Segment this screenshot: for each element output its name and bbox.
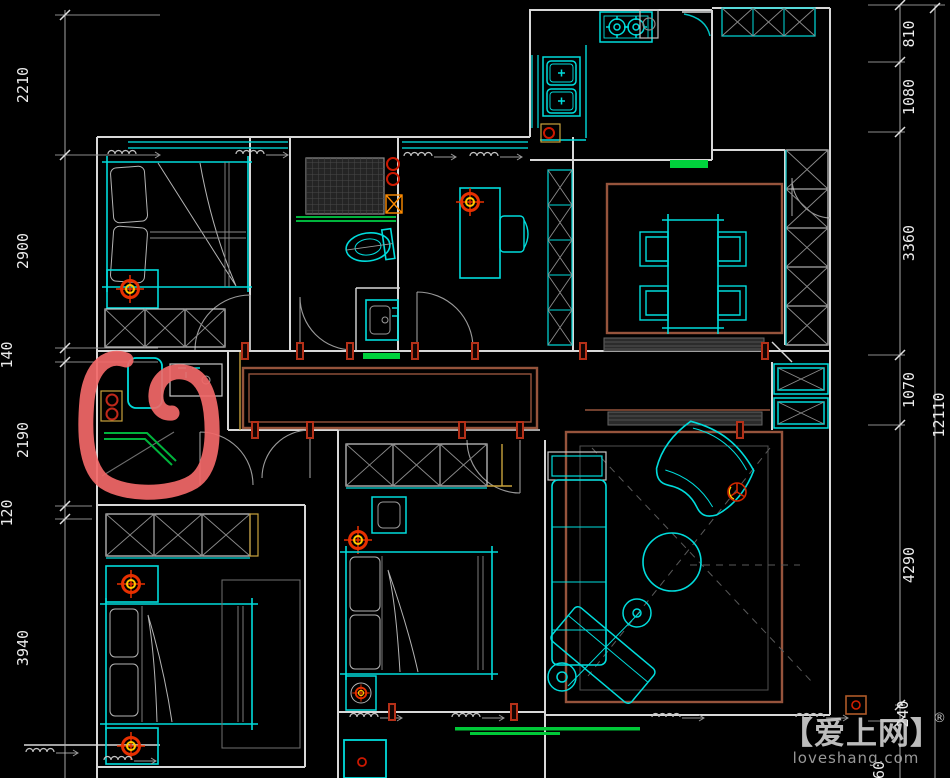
coffee-table-icon — [643, 533, 701, 591]
sliding-door-green — [470, 732, 560, 735]
corridor-cabinet — [243, 368, 537, 428]
curtain-icon — [404, 153, 456, 161]
layout-guides — [588, 448, 812, 682]
dimension-ticks — [60, 0, 940, 726]
dim-label: 2190 — [14, 422, 32, 458]
door-bedroom-middle — [467, 440, 520, 493]
dresser-chair-icon — [372, 497, 406, 533]
range-hood-icon — [640, 10, 658, 38]
dimension-lines — [55, 0, 945, 778]
bedroom-bottomleft — [26, 514, 300, 764]
ceiling-light-icon — [116, 275, 144, 303]
door-bedroom-bottomleft — [262, 430, 310, 478]
green-threshold — [296, 217, 396, 221]
wardrobe-icon — [105, 309, 225, 347]
door-bedroom-topleft — [195, 295, 250, 350]
curtain-icon — [104, 757, 156, 765]
sliding-door-green — [455, 727, 640, 731]
armchair-icon — [647, 412, 763, 526]
bedroom-middle — [340, 444, 640, 778]
dim-label: 140 — [0, 341, 16, 368]
green-strip — [363, 353, 400, 359]
bedroom-topleft — [102, 151, 288, 348]
ceiling-light-icon — [117, 570, 145, 598]
cabinet-right — [774, 364, 828, 428]
watermark-registered-icon: ® — [933, 711, 946, 726]
floor-plan-canvas: 2210 2900 140 2190 120 3940 810 1080 336… — [0, 0, 950, 778]
ceiling-light-icon — [344, 526, 372, 554]
window-bedroom-topleft — [128, 142, 288, 148]
pipe-shaft — [846, 696, 866, 714]
entry — [670, 8, 815, 168]
rug-inner-line — [580, 446, 768, 690]
duct-box — [386, 195, 402, 213]
tv-cabinet-icon — [604, 338, 764, 351]
window-study — [402, 142, 528, 148]
dim-label: 1080 — [900, 79, 918, 115]
dining-table-icon — [662, 214, 724, 334]
green-doormat — [670, 160, 708, 168]
windows — [128, 55, 538, 148]
sofa-icon — [548, 452, 606, 665]
kitchen — [540, 10, 710, 142]
floor-drain-icon — [544, 128, 554, 138]
curtain-icon — [108, 151, 160, 159]
ceiling-light-icon — [117, 732, 145, 760]
bed-icon — [100, 598, 258, 730]
dim-label: 3360 — [900, 225, 918, 261]
spiral-side-table-icon — [346, 676, 376, 710]
corner-shelf — [684, 14, 710, 36]
wardrobe-icon — [346, 444, 512, 488]
watermark: 【爱上网】 ® loveshang.com — [782, 711, 946, 767]
door-jambs — [242, 343, 768, 720]
floor-plan-screenshot: 2210 2900 140 2190 120 3940 810 1080 336… — [0, 0, 950, 778]
watermark-brand: 【爱上网】 — [782, 716, 942, 752]
double-sink-icon — [543, 57, 580, 116]
valve-icon — [107, 395, 118, 406]
living-room — [548, 412, 866, 721]
dining-chair-icon — [640, 232, 746, 320]
study — [404, 153, 572, 346]
dim-label: 2900 — [14, 233, 32, 269]
door-bathroom — [300, 297, 353, 350]
balcony — [344, 740, 386, 778]
dining-room — [604, 184, 782, 351]
dim-label: 4290 — [900, 547, 918, 583]
curtain-icon — [452, 714, 504, 722]
corridor — [240, 352, 770, 430]
washbasin-icon — [366, 300, 398, 340]
door-study — [417, 292, 473, 348]
bathroom — [296, 158, 402, 340]
wardrobe-icon — [106, 514, 258, 558]
entry-cabinet-icon — [722, 8, 815, 36]
bedroom-rug — [222, 580, 300, 748]
dining-rug — [607, 184, 782, 333]
curtain-icon — [470, 153, 522, 161]
bed-icon — [102, 156, 252, 292]
curtain-icon — [236, 151, 288, 159]
window-kitchen — [532, 55, 538, 128]
chaise-lounge-icon — [548, 599, 657, 705]
dim-label-total: 12110 — [930, 392, 948, 437]
watermark-domain: loveshang.com — [793, 749, 920, 767]
bed-icon — [340, 546, 498, 680]
dim-label: 2210 — [14, 67, 32, 103]
toilet-icon — [344, 229, 395, 265]
shower-grid-tiles — [306, 158, 384, 214]
valve-icon — [107, 409, 118, 420]
red-marker-annotation — [86, 358, 212, 492]
desk-chair-icon — [500, 216, 528, 252]
wardrobe-column-icon — [548, 170, 572, 345]
dim-label: 1070 — [900, 372, 918, 408]
curtain-icon — [26, 749, 78, 757]
walls — [24, 8, 830, 778]
dimension-labels-left: 2210 2900 140 2190 120 3940 — [0, 67, 32, 666]
dim-label: 120 — [0, 499, 16, 526]
dim-label: 3940 — [14, 630, 32, 666]
dimension-labels-right: 810 1080 3360 1070 4290 240 12110 60 — [870, 20, 948, 778]
dim-label: 810 — [900, 20, 918, 47]
